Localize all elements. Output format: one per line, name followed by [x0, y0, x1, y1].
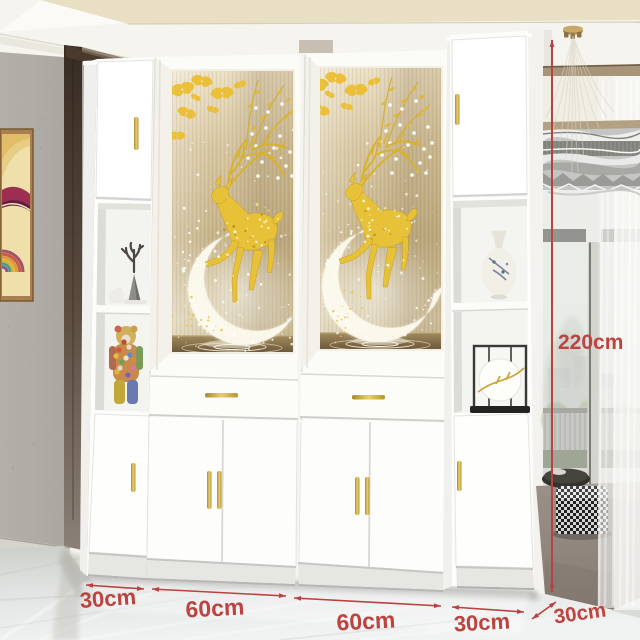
svg-text:220cm: 220cm [558, 331, 623, 354]
svg-text:60cm: 60cm [336, 606, 396, 635]
svg-text:60cm: 60cm [185, 593, 245, 622]
svg-text:30cm: 30cm [453, 609, 511, 637]
svg-text:30cm: 30cm [79, 584, 137, 613]
